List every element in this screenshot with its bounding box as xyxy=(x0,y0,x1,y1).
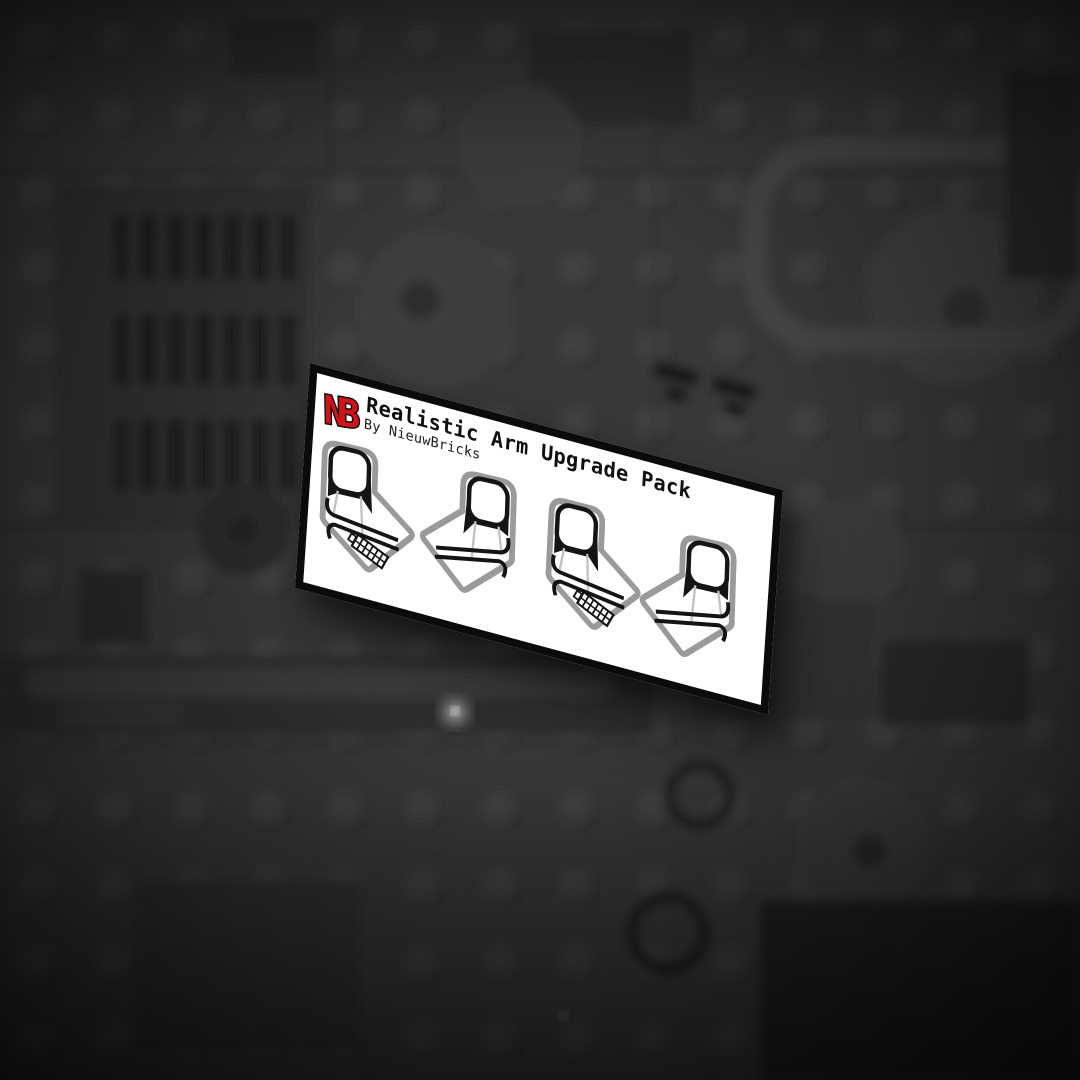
shoulder-pin-hole xyxy=(330,446,370,497)
arm-illustration-right-plain xyxy=(413,458,517,609)
shoulder-pin-hole xyxy=(556,503,596,555)
shoulder-pin-hole xyxy=(468,476,508,527)
arm-illustration-right-plain xyxy=(633,522,737,673)
promo-image: NB Realistic Arm Upgrade Pack By NieuwBr… xyxy=(0,0,1080,1080)
arm-illustration-left-zipper xyxy=(318,437,422,588)
shoulder-pin-hole xyxy=(688,540,728,591)
